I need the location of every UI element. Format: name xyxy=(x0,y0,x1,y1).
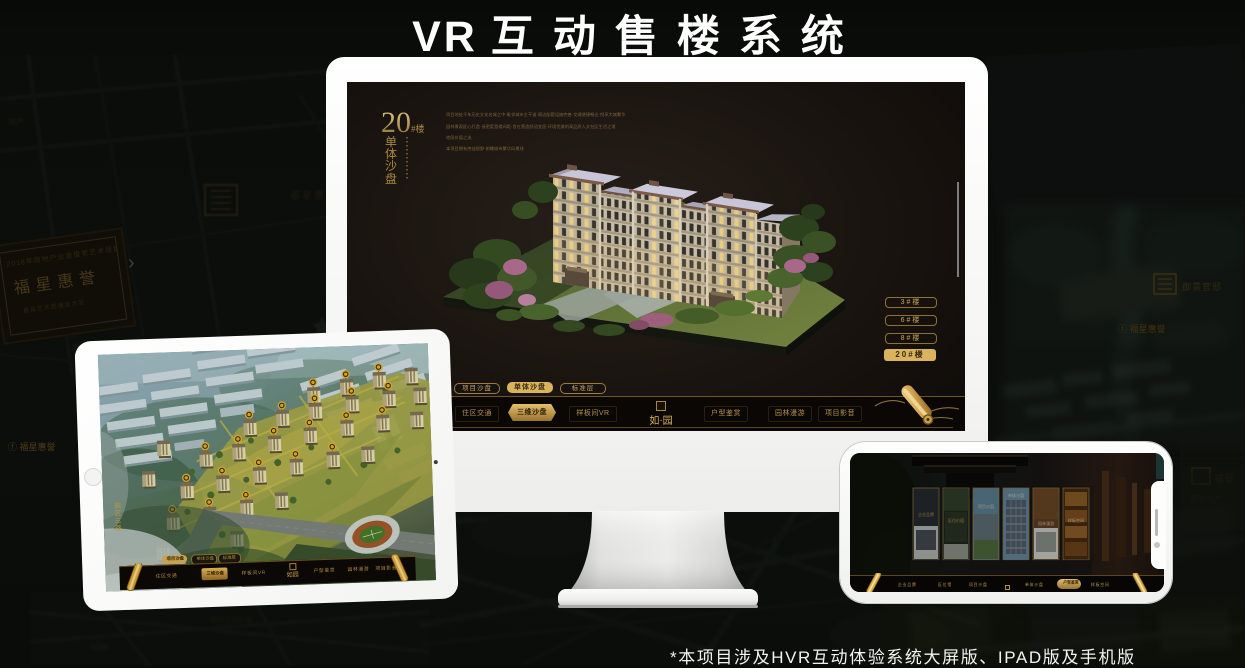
svg-text:滨河路: 滨河路 xyxy=(90,644,108,652)
svg-text:御景官邸: 御景官邸 xyxy=(1182,281,1222,292)
svg-text:地产: 地产 xyxy=(8,117,24,127)
svg-text:城市之光大道: 城市之光大道 xyxy=(210,615,252,624)
